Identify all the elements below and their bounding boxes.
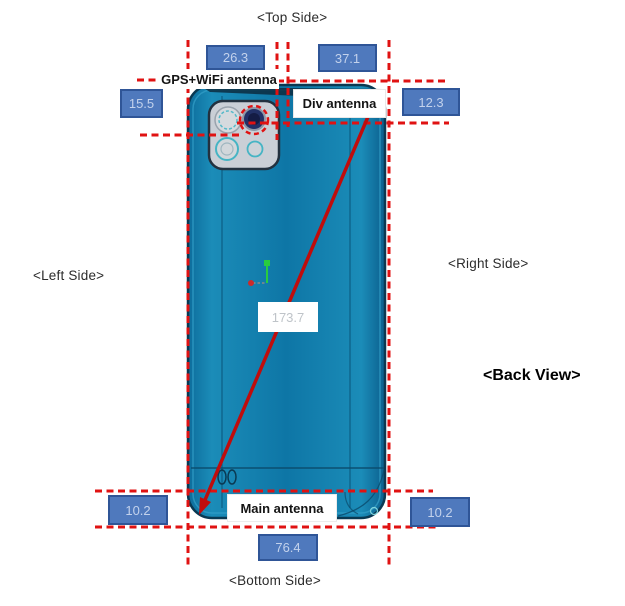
top-side-label: <Top Side> — [257, 10, 327, 25]
dimension-diagonal: 173.7 — [258, 302, 318, 332]
dimension-left-height-bottom: 10.2 — [108, 495, 168, 525]
dimension-right-height-top: 12.3 — [402, 88, 460, 116]
dimension-right-height-bottom: 10.2 — [410, 497, 470, 527]
dimension-bottom-width: 76.4 — [258, 534, 318, 561]
right-side-label: <Right Side> — [448, 256, 528, 271]
axis-origin-icon — [248, 280, 254, 286]
antenna-location-diagram: <Top Side> <Left Side> <Right Side> <Bot… — [0, 0, 625, 606]
div-antenna-label: Div antenna — [294, 90, 385, 117]
dimension-top-width-right: 37.1 — [318, 44, 377, 72]
back-view-label: <Back View> — [483, 367, 581, 385]
bottom-side-label: <Bottom Side> — [229, 573, 321, 588]
camera-lens-bottom-left — [216, 138, 238, 160]
left-side-label: <Left Side> — [33, 268, 104, 283]
dimension-left-height-top: 15.5 — [120, 89, 163, 118]
main-antenna-label: Main antenna — [228, 495, 336, 521]
camera-flash — [248, 142, 263, 157]
dimension-top-width-left: 26.3 — [206, 45, 265, 70]
gps-wifi-antenna-label: GPS+WiFi antenna — [159, 69, 279, 89]
axis-y-tip-icon — [264, 260, 270, 266]
